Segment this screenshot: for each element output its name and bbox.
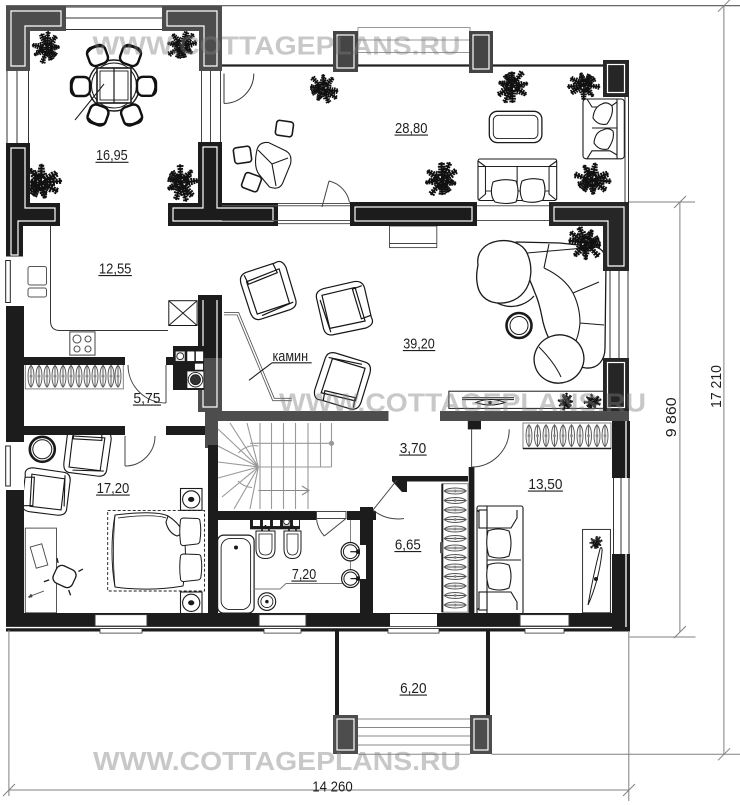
svg-text:6,20: 6,20 — [400, 680, 426, 697]
svg-text:16,95: 16,95 — [96, 147, 128, 164]
svg-text:39,20: 39,20 — [403, 336, 435, 353]
svg-text:9 860: 9 860 — [663, 397, 680, 437]
svg-text:13,50: 13,50 — [528, 476, 562, 493]
svg-text:WWW.COTTAGEPLANS.RU: WWW.COTTAGEPLANS.RU — [93, 30, 461, 60]
svg-text:7,20: 7,20 — [292, 566, 316, 583]
svg-text:17,20: 17,20 — [97, 480, 130, 497]
svg-text:5,75: 5,75 — [133, 390, 160, 407]
svg-text:3,70: 3,70 — [400, 440, 427, 457]
svg-text:12,55: 12,55 — [99, 261, 131, 278]
svg-text:14 260: 14 260 — [312, 779, 352, 796]
svg-text:WWW.COTTAGEPLANS.RU: WWW.COTTAGEPLANS.RU — [279, 388, 646, 418]
svg-text:6,65: 6,65 — [395, 537, 421, 554]
svg-text:17 210: 17 210 — [708, 365, 725, 408]
svg-text:28,80: 28,80 — [395, 120, 428, 137]
svg-text:WWW.COTTAGEPLANS.RU: WWW.COTTAGEPLANS.RU — [93, 746, 461, 776]
